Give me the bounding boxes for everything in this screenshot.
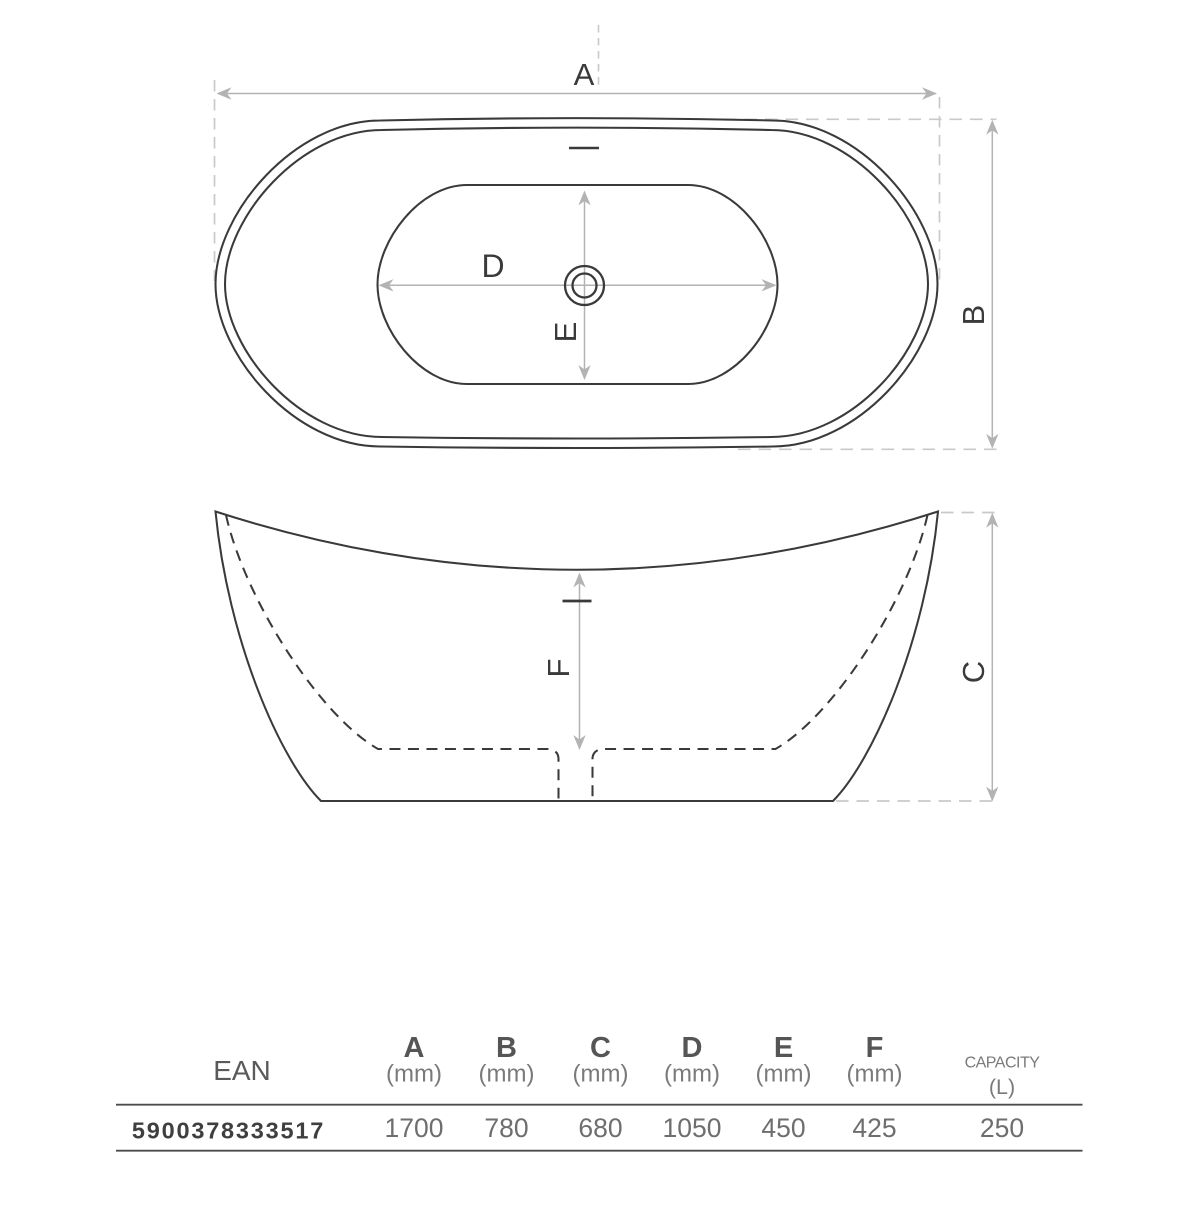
svg-text:680: 680	[578, 1113, 622, 1143]
svg-text:5900378333517: 5900378333517	[132, 1118, 325, 1144]
svg-text:D: D	[481, 248, 504, 284]
svg-text:E: E	[548, 322, 583, 343]
svg-text:780: 780	[484, 1113, 528, 1143]
svg-text:D: D	[682, 1032, 703, 1064]
svg-text:A: A	[574, 57, 595, 92]
svg-text:1700: 1700	[385, 1113, 444, 1143]
svg-text:CAPACITY: CAPACITY	[965, 1055, 1041, 1072]
svg-text:(L): (L)	[989, 1075, 1015, 1099]
svg-text:F: F	[541, 659, 576, 678]
svg-text:1050: 1050	[663, 1113, 722, 1143]
svg-text:(mm): (mm)	[573, 1061, 629, 1088]
svg-text:E: E	[774, 1032, 793, 1064]
svg-text:450: 450	[761, 1113, 805, 1143]
svg-text:(mm): (mm)	[479, 1061, 535, 1088]
svg-text:B: B	[496, 1032, 517, 1064]
svg-text:(mm): (mm)	[756, 1061, 812, 1088]
svg-text:A: A	[404, 1032, 425, 1064]
svg-text:C: C	[590, 1032, 611, 1064]
svg-text:(mm): (mm)	[386, 1061, 442, 1088]
svg-text:F: F	[866, 1032, 884, 1064]
svg-text:(mm): (mm)	[847, 1061, 903, 1088]
svg-text:EAN: EAN	[213, 1055, 271, 1086]
svg-text:250: 250	[980, 1113, 1024, 1143]
svg-text:(mm): (mm)	[664, 1061, 720, 1088]
svg-text:425: 425	[852, 1113, 896, 1143]
svg-text:B: B	[956, 305, 991, 326]
svg-text:C: C	[956, 661, 991, 683]
